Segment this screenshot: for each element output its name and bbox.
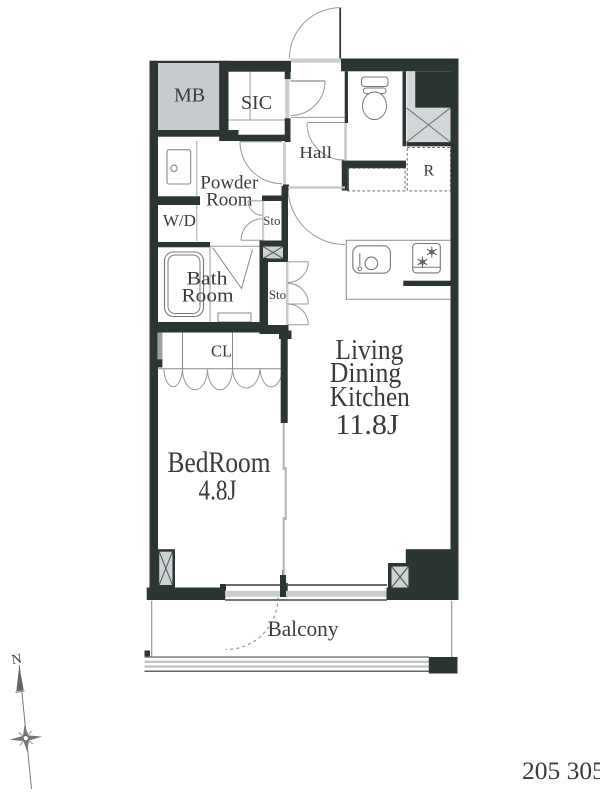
svg-text:N: N [10, 652, 22, 668]
svg-text:CL: CL [211, 341, 232, 360]
svg-text:Room: Room [206, 190, 253, 211]
svg-text:4.8J: 4.8J [199, 476, 237, 507]
svg-text:R: R [423, 163, 434, 180]
svg-text:Hall: Hall [299, 143, 332, 162]
svg-text:Room: Room [182, 286, 234, 307]
svg-text:Balcony: Balcony [268, 616, 339, 641]
svg-text:205 305: 205 305 [522, 756, 600, 785]
svg-text:MB: MB [174, 85, 205, 107]
svg-text:Sto: Sto [269, 287, 286, 302]
svg-text:11.8J: 11.8J [335, 410, 399, 441]
svg-text:Sto: Sto [263, 213, 280, 228]
svg-text:BedRoom: BedRoom [168, 446, 271, 479]
svg-text:W/D: W/D [163, 211, 196, 230]
svg-text:Kitchen: Kitchen [330, 382, 410, 413]
svg-text:SIC: SIC [241, 92, 272, 114]
